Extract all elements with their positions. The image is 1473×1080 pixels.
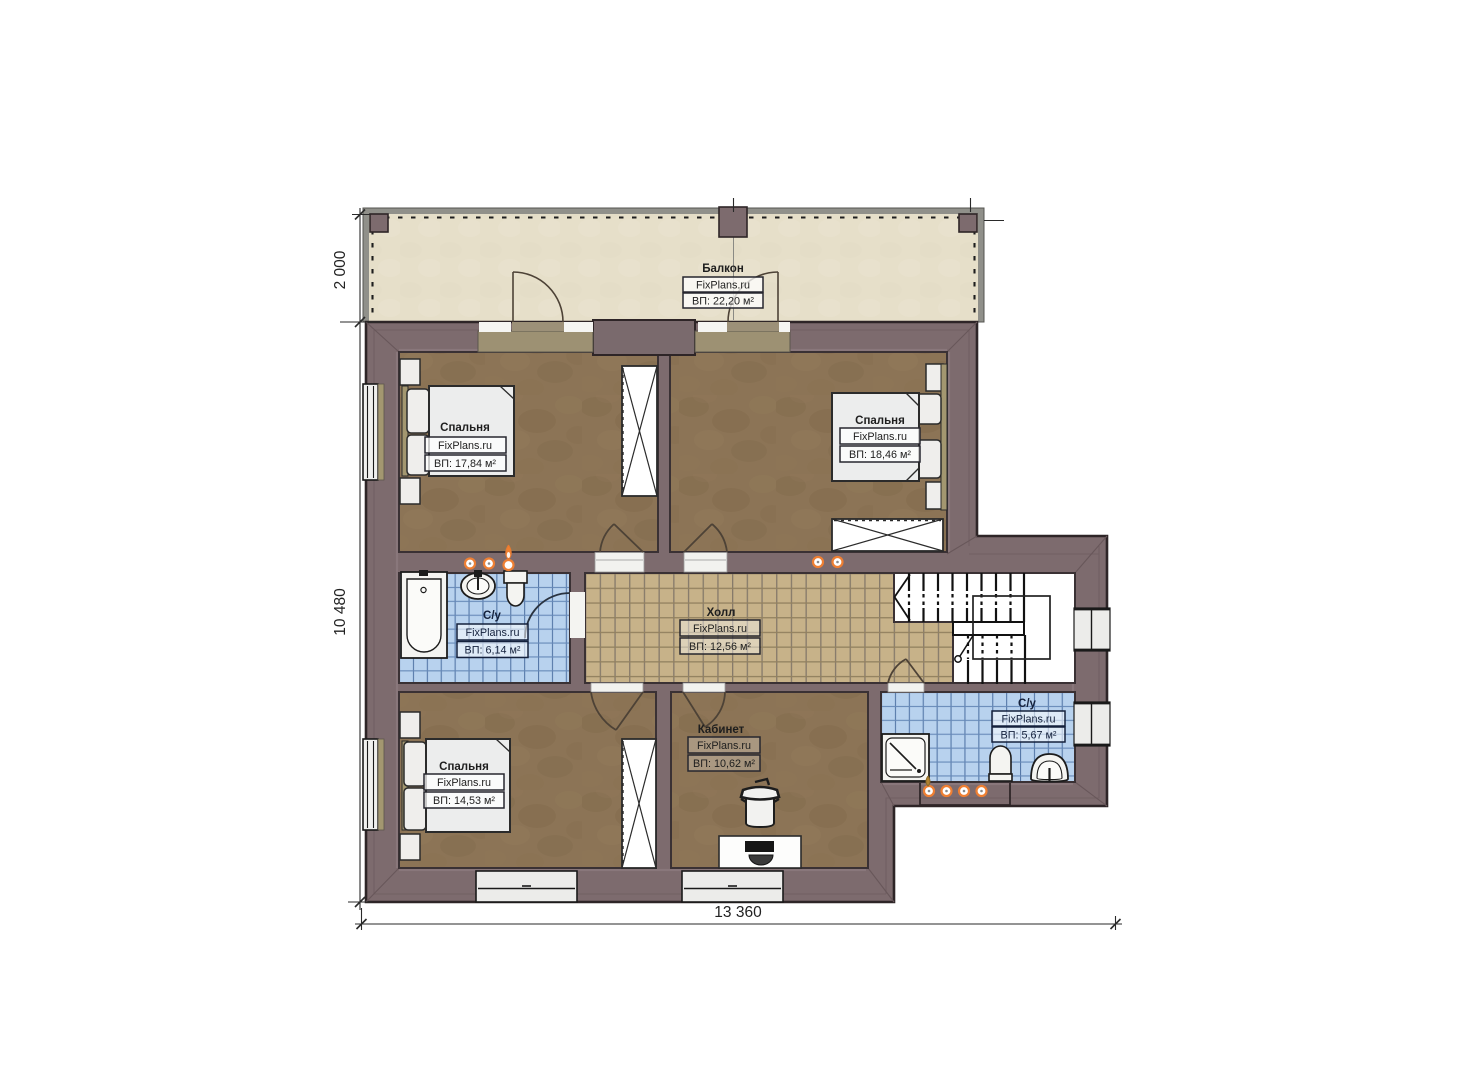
svg-text:Кабинет: Кабинет <box>698 724 745 736</box>
svg-text:FixPlans.ru: FixPlans.ru <box>696 280 750 292</box>
svg-text:FixPlans.ru: FixPlans.ru <box>693 623 747 635</box>
svg-text:Спальня: Спальня <box>440 422 490 434</box>
svg-text:ВП: 5,67 м²: ВП: 5,67 м² <box>1001 730 1057 742</box>
svg-text:ВП: 10,62 м²: ВП: 10,62 м² <box>693 758 755 770</box>
svg-text:С/у: С/у <box>483 610 502 622</box>
svg-text:ВП: 18,46 м²: ВП: 18,46 м² <box>849 449 911 461</box>
svg-text:Холл: Холл <box>707 607 736 619</box>
svg-text:2 000: 2 000 <box>332 250 349 289</box>
svg-text:ВП: 12,56 м²: ВП: 12,56 м² <box>689 641 751 653</box>
svg-text:С/у: С/у <box>1018 698 1037 710</box>
svg-text:FixPlans.ru: FixPlans.ru <box>437 777 491 789</box>
svg-text:Балкон: Балкон <box>702 263 744 275</box>
svg-text:10 480: 10 480 <box>332 588 349 636</box>
svg-text:FixPlans.ru: FixPlans.ru <box>438 440 492 452</box>
svg-text:Спальня: Спальня <box>855 415 905 427</box>
svg-text:13 360: 13 360 <box>714 904 762 921</box>
svg-text:FixPlans.ru: FixPlans.ru <box>465 627 519 639</box>
svg-text:FixPlans.ru: FixPlans.ru <box>853 431 907 443</box>
svg-text:ВП: 14,53 м²: ВП: 14,53 м² <box>433 795 495 807</box>
svg-text:ВП: 22,20 м²: ВП: 22,20 м² <box>692 296 754 308</box>
svg-text:ВП: 17,84 м²: ВП: 17,84 м² <box>434 458 496 470</box>
svg-text:FixPlans.ru: FixPlans.ru <box>697 740 751 752</box>
svg-text:Спальня: Спальня <box>439 761 489 773</box>
svg-text:ВП: 6,14 м²: ВП: 6,14 м² <box>465 645 521 657</box>
svg-text:FixPlans.ru: FixPlans.ru <box>1001 714 1055 726</box>
